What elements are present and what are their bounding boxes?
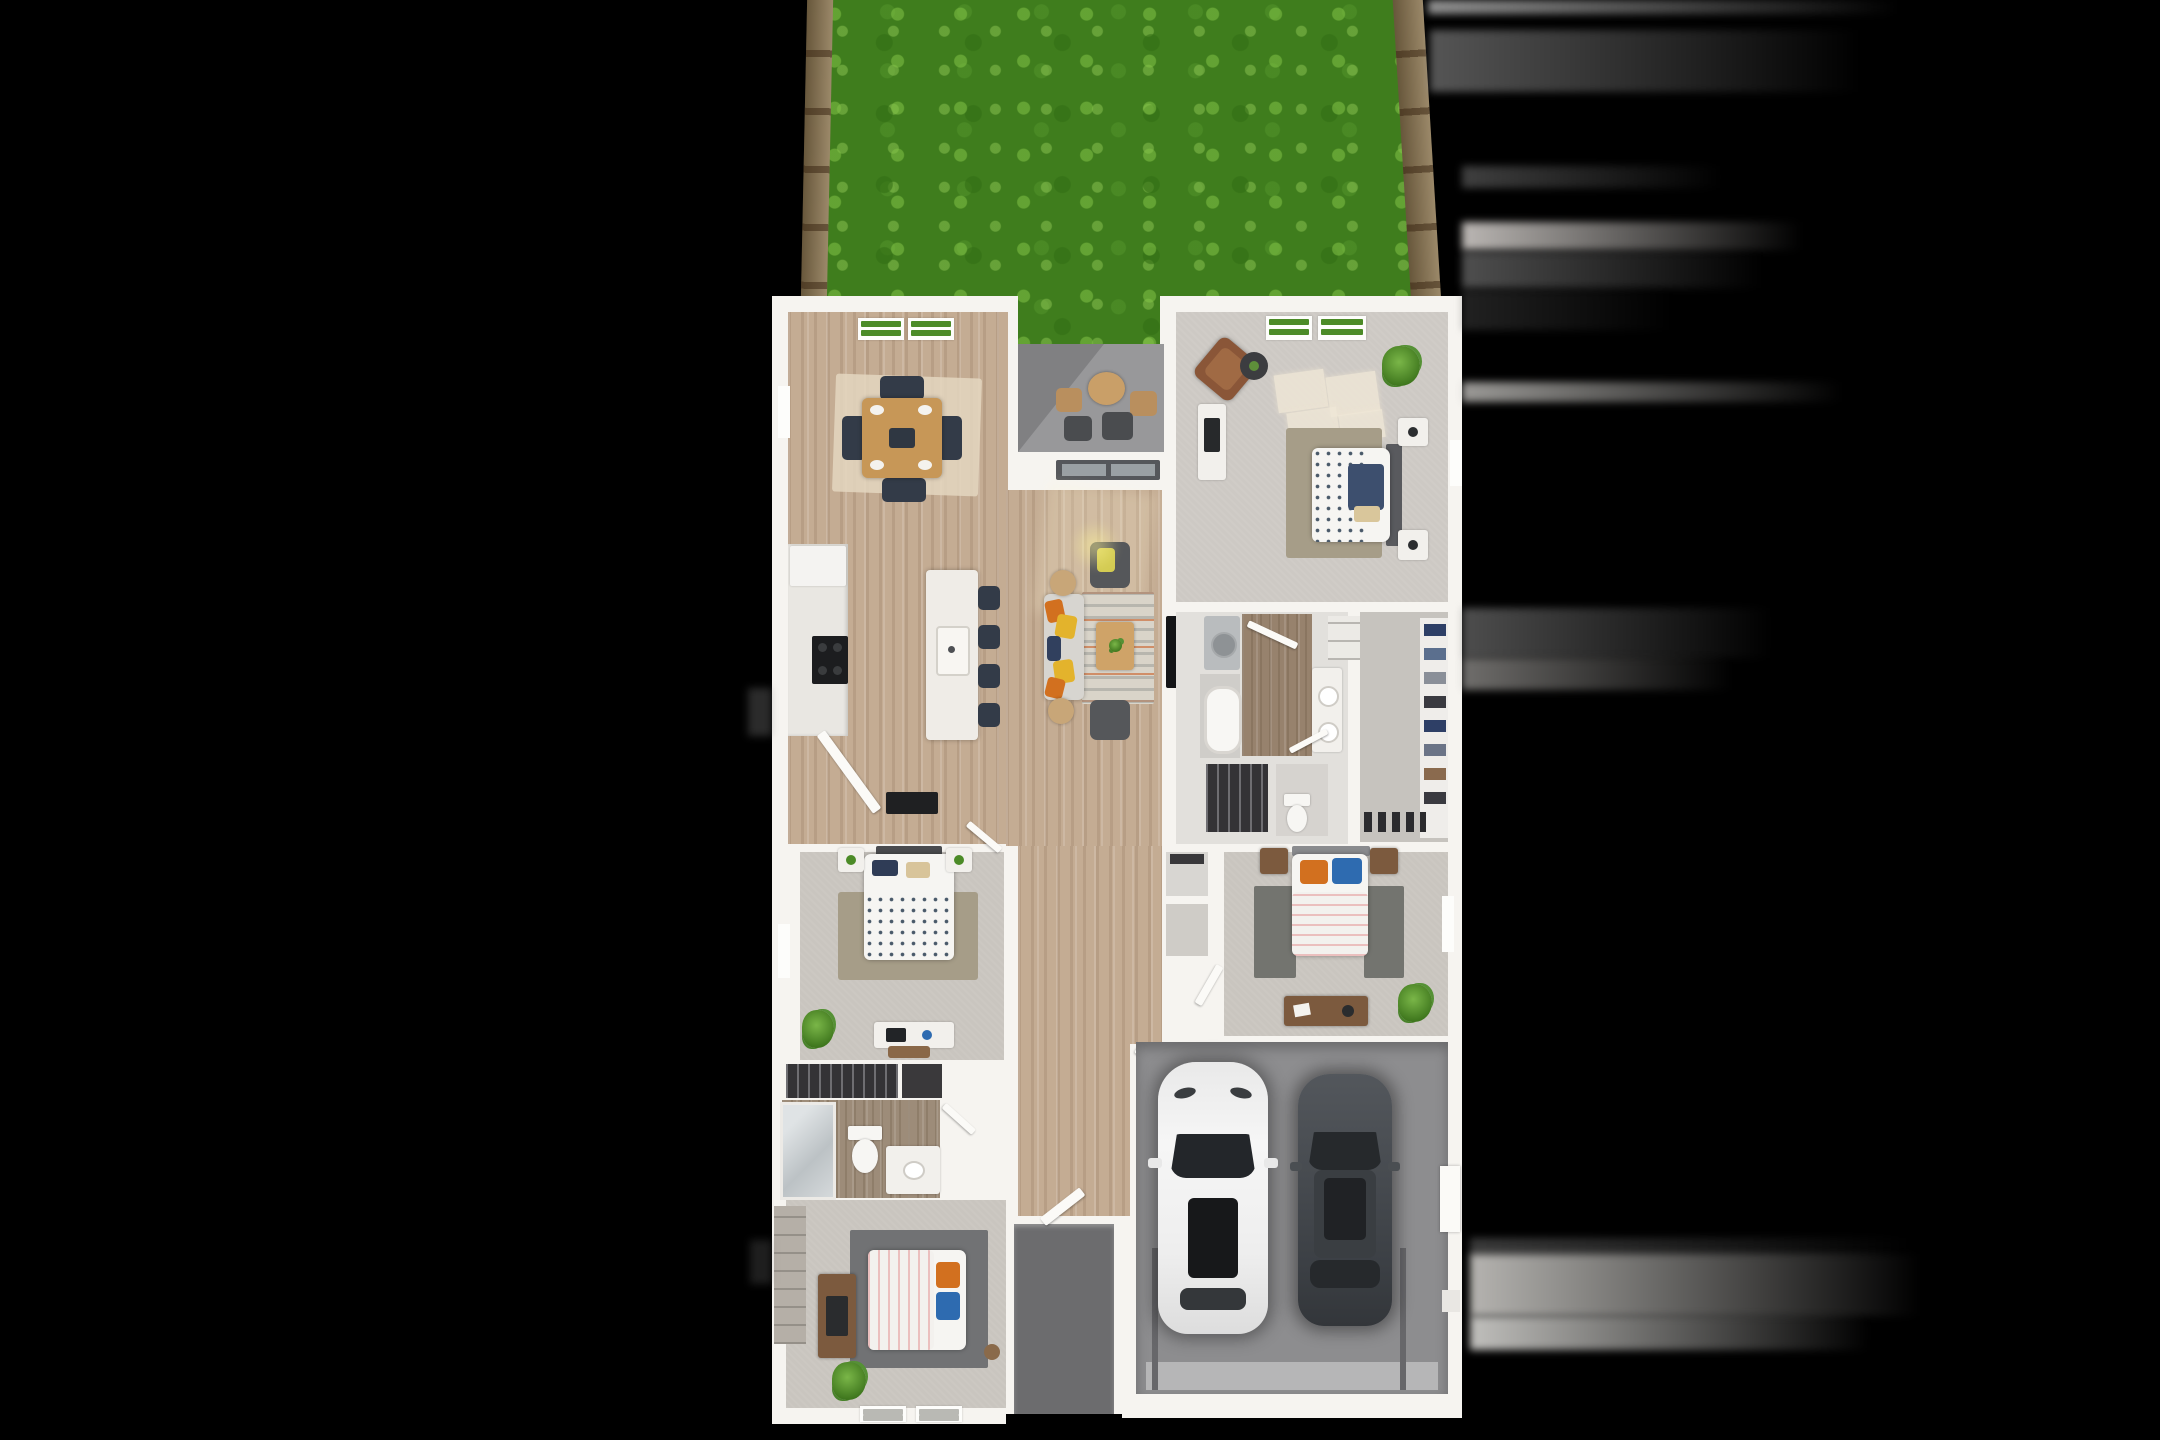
burner [818, 643, 827, 652]
bathtub [1204, 686, 1242, 754]
hall-closet-b [1166, 904, 1208, 956]
table-plant [1109, 639, 1122, 652]
plate [918, 405, 932, 415]
closet-shelf-b [902, 1064, 942, 1098]
sedan-windshield [1308, 1132, 1382, 1170]
garage-bottom-trim [1122, 1418, 1466, 1440]
armchair-bottom [1090, 700, 1130, 740]
bedroom4-teddy [984, 1344, 1000, 1360]
sunlight-patch [1274, 369, 1329, 414]
nightstand-plant [954, 855, 964, 865]
bedroom3-dresser [1284, 996, 1368, 1026]
primary-window [1266, 316, 1312, 340]
plate [870, 460, 884, 470]
clothes-stack [1424, 744, 1446, 756]
bedroom2-nightstand-right [946, 848, 972, 872]
island-stool [978, 586, 1000, 610]
dining-chair-bottom [882, 478, 926, 502]
island-stool [978, 703, 1000, 727]
nightstand-plant [846, 855, 856, 865]
dining-table [862, 398, 942, 478]
bedroom2-desk [874, 1022, 954, 1048]
bedroom3-window [1442, 896, 1454, 952]
bath-vanity [886, 1146, 940, 1194]
floor-plan-canvas [0, 0, 2160, 1440]
patio-chair-wood-left [1056, 388, 1082, 412]
dining-window [908, 318, 954, 340]
bedroom3-nightstand-right [1370, 848, 1398, 874]
artifact-band [1462, 382, 1842, 402]
washer-door [1211, 632, 1237, 658]
bedroom4-dresser [818, 1274, 856, 1358]
plate [870, 405, 884, 415]
primary-side-window [1450, 440, 1462, 486]
bedroom4-pillow-blue [936, 1292, 960, 1320]
bedroom3-nightstand-left [1260, 848, 1288, 874]
artifact-band [1462, 608, 1772, 658]
bedroom4-pillow-orange [936, 1262, 960, 1288]
dresser-item [1342, 1005, 1354, 1017]
garage-door-track-right [1400, 1248, 1406, 1390]
lamp [1408, 427, 1418, 437]
suv-mirror-right [1264, 1158, 1278, 1168]
artifact-band-left [748, 688, 772, 736]
bedroom2-bench [888, 1046, 930, 1058]
bedroom2-window [778, 924, 790, 978]
artifact-band [1470, 1316, 1870, 1350]
dining-chair-top [880, 376, 924, 400]
bedroom3-rug-right [1364, 886, 1404, 978]
shoe-row [1364, 812, 1426, 832]
bedroom2-pillow-beige [906, 862, 930, 878]
island-faucet [948, 646, 955, 653]
coffee-table [1096, 622, 1134, 670]
burner [833, 643, 842, 652]
suv-sunroof [1188, 1198, 1238, 1278]
clothes-stack [1424, 696, 1446, 708]
patio-round-table [1088, 372, 1125, 405]
dining-side-window [778, 386, 790, 438]
dresser-tv [1204, 418, 1220, 452]
sedan-sunroof [1324, 1178, 1366, 1240]
artifact-band [1428, 0, 1898, 14]
dark-sedan [1294, 1074, 1396, 1326]
side-table-bottom [1048, 698, 1074, 724]
sliding-door-glass [1111, 464, 1155, 476]
table-plant [1249, 361, 1259, 371]
suv-mirror-left [1148, 1158, 1162, 1168]
bedroom2-pillow-navy [872, 860, 898, 876]
bedroom2-closet [786, 1064, 898, 1098]
bedroom4-window [916, 1406, 962, 1422]
bedroom2-duvet [864, 894, 954, 960]
artifact-band [1462, 290, 1672, 330]
clothes-stack [1424, 792, 1446, 804]
dresser-paper [1293, 1003, 1311, 1018]
patio-chair-dark-bottom [1102, 412, 1133, 440]
desk-item [922, 1030, 932, 1040]
primary-side-table [1240, 352, 1268, 380]
primary-hanging-closet [1206, 764, 1268, 832]
front-porch [1014, 1224, 1114, 1414]
sedan-mirror-left [1290, 1162, 1302, 1171]
island-stool [978, 625, 1000, 649]
sedan-rear-window [1310, 1260, 1380, 1288]
island-stool [978, 664, 1000, 688]
toilet-bowl [1287, 805, 1307, 832]
refrigerator [790, 546, 846, 586]
toilet-tank [848, 1126, 882, 1140]
floor-hall [1018, 846, 1162, 1044]
artifact-band-left [750, 1240, 772, 1284]
bedroom4-duvet [868, 1250, 934, 1350]
suv-windshield [1170, 1134, 1256, 1178]
linen-closet [1328, 616, 1364, 660]
porch-bottom-trim [1006, 1414, 1122, 1440]
sliding-door-glass [1062, 464, 1106, 476]
artifact-band [1462, 658, 1732, 690]
dining-window [858, 318, 904, 340]
primary-nightstand-top [1398, 418, 1428, 446]
artifact-band [1430, 30, 1860, 92]
artifact-band [1462, 252, 1762, 288]
clothes-stack [1424, 648, 1446, 660]
laptop [886, 1028, 906, 1042]
table-runner [889, 428, 915, 448]
bedroom3-rug-left [1254, 886, 1296, 978]
clothes-stack [1424, 720, 1446, 732]
lamp-glow [1072, 518, 1118, 574]
garage-side-vent [1442, 1290, 1460, 1312]
primary-pillow-beige [1354, 506, 1380, 522]
clothes-stack [1424, 768, 1446, 780]
primary-dresser [1198, 404, 1226, 480]
dresser-item-dark [826, 1296, 848, 1336]
hall-console [886, 792, 938, 814]
white-suv [1152, 1062, 1274, 1334]
primary-nightstand-bottom [1398, 530, 1428, 560]
lamp [1408, 540, 1418, 550]
bedroom3-duvet [1292, 892, 1368, 956]
plate [918, 460, 932, 470]
bedroom2-nightstand-left [838, 848, 864, 872]
laundry-washer [1204, 616, 1240, 670]
artifact-band [1470, 1254, 1920, 1316]
bedroom3-pillow-orange [1300, 860, 1328, 884]
artifact-band [1462, 166, 1722, 188]
clothes-stack [1424, 672, 1446, 684]
garage-side-door [1440, 1166, 1460, 1232]
bedroom3-pillow-blue [1332, 858, 1362, 884]
burner [818, 666, 827, 675]
toilet-bowl [852, 1139, 878, 1173]
sofa-pillow-navy [1047, 636, 1061, 661]
primary-window [1318, 316, 1366, 340]
bedroom4-window [860, 1406, 906, 1422]
side-table-top [1050, 570, 1076, 596]
patio-chair-dark-left [1064, 416, 1092, 441]
primary-throw-navy [1348, 464, 1384, 510]
sink [903, 1161, 925, 1180]
patio-chair-wood-right [1130, 391, 1157, 416]
artifact-band [1462, 222, 1802, 250]
suv-rear-window [1180, 1288, 1246, 1310]
burner [833, 666, 842, 675]
range-cooktop [812, 636, 848, 684]
sedan-mirror-right [1388, 1162, 1400, 1171]
shower [780, 1102, 836, 1200]
hall-closet-a [1166, 852, 1208, 896]
sliding-door [1056, 460, 1160, 480]
bedroom4-closet [774, 1206, 806, 1344]
closet-shelf-dark [1170, 854, 1204, 864]
garage-door-strip [1146, 1362, 1438, 1390]
clothes-stack [1424, 624, 1446, 636]
sink [1318, 686, 1339, 707]
